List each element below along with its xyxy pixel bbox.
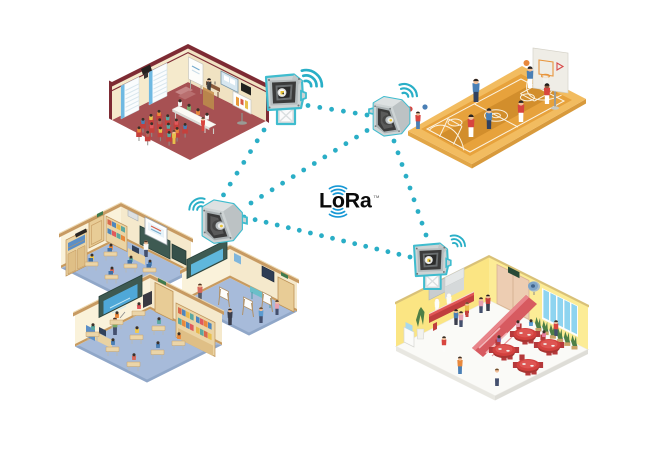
svg-text:TM: TM [374,194,380,199]
svg-text:LoRa: LoRa [319,189,373,213]
